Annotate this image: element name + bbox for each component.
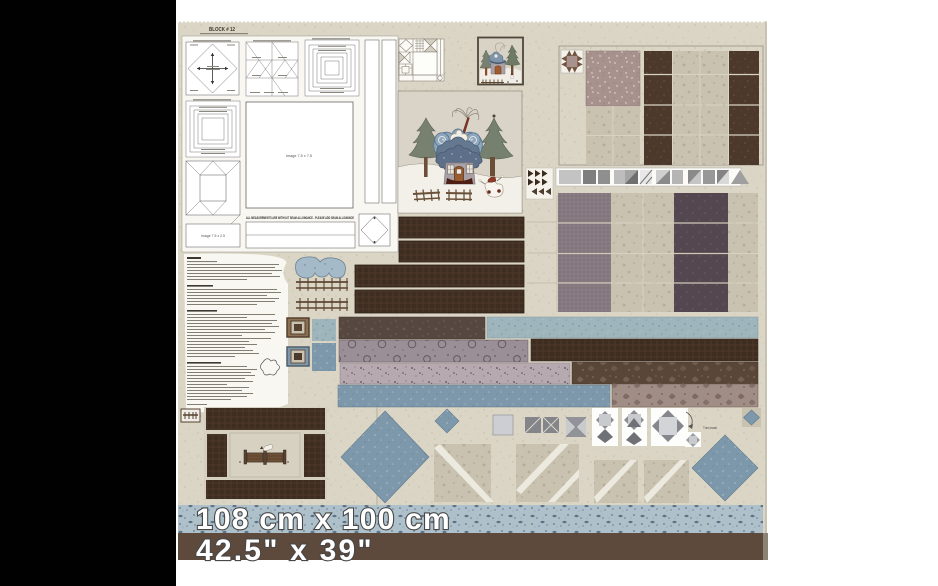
svg-text:BLOCK # 12: BLOCK # 12	[209, 27, 235, 33]
svg-text:ALL MEASUREMENTS ARE WITHOUT S: ALL MEASUREMENTS ARE WITHOUT SEAM ALLOWA…	[246, 215, 354, 220]
svg-text:Turn back: Turn back	[703, 426, 717, 430]
svg-text:42.5" x 39": 42.5" x 39"	[196, 534, 374, 567]
svg-text:108 cm x 100 cm: 108 cm x 100 cm	[196, 503, 451, 536]
svg-text:Image 7.5 x 7.5: Image 7.5 x 7.5	[286, 154, 312, 158]
svg-text:Image 7.5 x 2.5: Image 7.5 x 2.5	[201, 234, 225, 238]
